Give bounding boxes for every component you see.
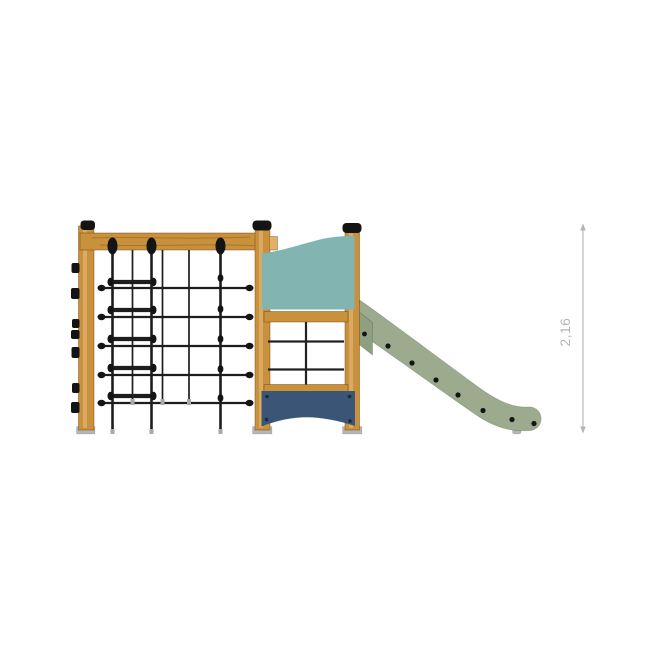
rung-end <box>151 306 157 314</box>
cleat <box>72 347 80 358</box>
screw <box>348 395 352 399</box>
rivet <box>455 392 460 397</box>
knob <box>246 285 254 291</box>
rope-anchor <box>219 429 223 434</box>
dimension-arrow-down-icon <box>580 427 586 434</box>
knob <box>246 372 254 378</box>
knob <box>246 314 254 320</box>
rivet <box>433 377 438 382</box>
rope-anchor <box>111 429 115 434</box>
cleat <box>71 402 80 413</box>
climbing-net <box>98 238 254 435</box>
rope-cap <box>161 399 165 405</box>
rung-end <box>108 335 114 343</box>
rope-anchor <box>150 429 154 434</box>
navy-panel <box>262 391 356 427</box>
connector <box>218 305 224 313</box>
connector <box>218 274 224 282</box>
cleat <box>71 330 80 339</box>
cleat <box>72 263 80 273</box>
connector <box>218 335 224 343</box>
screw <box>265 395 269 399</box>
rung-end <box>151 278 157 286</box>
rivet <box>385 343 390 348</box>
cleat <box>72 319 80 328</box>
rivet <box>362 332 367 337</box>
hanger-knob <box>108 238 118 255</box>
dimension-arrow-up-icon <box>580 224 586 231</box>
tower <box>253 221 373 431</box>
playset-illustration: 2,16 <box>0 0 660 660</box>
product-illustration-canvas: 2,16 <box>0 0 660 660</box>
rung-end <box>108 278 114 286</box>
connector <box>218 394 224 402</box>
net-horizontal-ropes <box>99 288 252 403</box>
rung-end <box>151 392 157 400</box>
window-grid <box>268 322 344 385</box>
knob <box>246 400 254 406</box>
knob <box>98 372 106 378</box>
beam-end-stub <box>270 237 278 251</box>
knob <box>98 314 106 320</box>
dimension-annotation: 2,16 <box>558 224 586 434</box>
tower-post-right-cap <box>343 223 362 233</box>
knob <box>98 400 106 406</box>
left-post-highlight <box>83 228 87 428</box>
left-post-cap <box>81 221 96 231</box>
left-frame <box>79 221 264 431</box>
slide <box>354 296 541 434</box>
window-top-rail <box>264 312 348 323</box>
top-beam <box>80 233 263 250</box>
rope-end-caps <box>111 399 223 434</box>
knob <box>246 343 254 349</box>
rivet <box>480 408 485 413</box>
rivet <box>531 421 536 426</box>
rivet <box>509 417 514 422</box>
cleat <box>72 383 80 393</box>
hanger-knob <box>216 238 226 255</box>
rivet <box>409 360 414 365</box>
rung-end <box>108 392 114 400</box>
slide-body <box>354 296 541 431</box>
hanger-knob <box>147 238 157 255</box>
rope-cap <box>187 399 191 405</box>
screw <box>348 419 352 423</box>
connector <box>218 365 224 373</box>
tower-post-left-cap <box>253 221 272 231</box>
knob <box>98 285 106 291</box>
rung-end <box>108 306 114 314</box>
knob <box>98 343 106 349</box>
cleat <box>71 288 80 299</box>
rope-cap <box>131 399 135 405</box>
dimension-label: 2,16 <box>558 318 573 347</box>
rung-end <box>108 364 114 372</box>
rung-end <box>151 364 157 372</box>
screw <box>265 418 269 422</box>
rung-end <box>151 335 157 343</box>
